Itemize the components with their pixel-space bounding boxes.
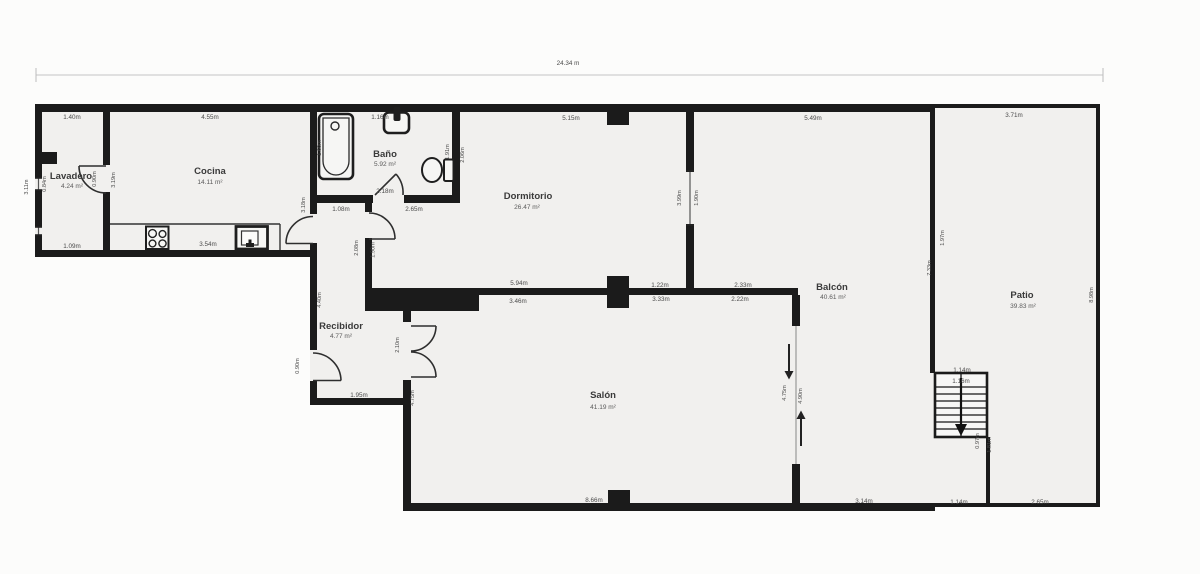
svg-text:1.91m: 1.91m xyxy=(445,144,451,160)
svg-text:39.83 m²: 39.83 m² xyxy=(1010,303,1036,310)
svg-text:14.11 m²: 14.11 m² xyxy=(197,179,223,186)
svg-text:40.61 m²: 40.61 m² xyxy=(820,294,846,301)
svg-text:2.18m: 2.18m xyxy=(376,188,394,195)
svg-text:1.08m: 1.08m xyxy=(332,206,350,213)
svg-text:0.97m: 0.97m xyxy=(975,433,981,449)
svg-text:Lavadero: Lavadero xyxy=(50,171,92,182)
svg-text:4.75m: 4.75m xyxy=(410,390,416,406)
svg-text:1.16m: 1.16m xyxy=(952,378,970,385)
svg-text:3.71m: 3.71m xyxy=(1005,112,1023,119)
svg-text:5.15m: 5.15m xyxy=(562,115,580,122)
svg-text:4.55m: 4.55m xyxy=(201,114,219,121)
svg-text:5.49m: 5.49m xyxy=(804,115,822,122)
svg-text:4.75m: 4.75m xyxy=(782,385,788,401)
svg-text:Dormitorio: Dormitorio xyxy=(504,191,553,202)
svg-text:3.11m: 3.11m xyxy=(24,179,30,194)
svg-text:4.77 m²: 4.77 m² xyxy=(330,333,353,340)
svg-text:1.60m: 1.60m xyxy=(317,140,323,156)
svg-text:2.06m: 2.06m xyxy=(460,147,466,163)
svg-text:4.40m: 4.40m xyxy=(317,292,323,308)
svg-text:8.66m: 8.66m xyxy=(585,497,603,504)
svg-text:2.65m: 2.65m xyxy=(405,206,423,213)
svg-text:Balcón: Balcón xyxy=(816,282,848,293)
svg-text:1.95m: 1.95m xyxy=(350,392,368,399)
svg-text:3.33m: 3.33m xyxy=(652,296,670,303)
svg-text:Baño: Baño xyxy=(373,149,397,160)
svg-text:2.10m: 2.10m xyxy=(395,337,401,353)
svg-text:2.22m: 2.22m xyxy=(731,296,749,303)
svg-text:3.99m: 3.99m xyxy=(677,190,683,206)
svg-text:1.90m: 1.90m xyxy=(371,242,377,258)
svg-text:1.16m: 1.16m xyxy=(371,114,389,121)
svg-text:24.34 m: 24.34 m xyxy=(557,60,580,67)
svg-text:Cocina: Cocina xyxy=(194,166,226,177)
svg-text:2.65m: 2.65m xyxy=(1031,499,1049,506)
svg-text:1.14m: 1.14m xyxy=(950,499,968,506)
svg-text:1.09m: 1.09m xyxy=(63,243,81,250)
svg-text:4.90m: 4.90m xyxy=(798,388,804,404)
svg-text:3.14m: 3.14m xyxy=(855,498,873,505)
svg-text:3.54m: 3.54m xyxy=(199,241,217,248)
svg-text:2.08m: 2.08m xyxy=(354,240,360,256)
svg-text:1.90m: 1.90m xyxy=(694,190,700,206)
svg-text:5.92 m²: 5.92 m² xyxy=(374,161,397,168)
svg-text:3.18m: 3.18m xyxy=(301,197,307,213)
svg-text:Recibidor: Recibidor xyxy=(319,321,363,332)
svg-text:0.84m: 0.84m xyxy=(42,176,48,192)
svg-text:1.22m: 1.22m xyxy=(651,282,669,289)
svg-text:5.94m: 5.94m xyxy=(510,280,528,287)
svg-text:3.19m: 3.19m xyxy=(111,172,117,188)
svg-text:8.98m: 8.98m xyxy=(1089,287,1095,303)
svg-text:1.40m: 1.40m xyxy=(63,114,81,121)
svg-text:Salón: Salón xyxy=(590,390,616,401)
svg-text:1.81m: 1.81m xyxy=(987,437,993,453)
svg-text:0.90m: 0.90m xyxy=(295,358,301,374)
svg-text:41.19 m²: 41.19 m² xyxy=(590,404,616,411)
svg-text:0.90m: 0.90m xyxy=(92,171,98,187)
svg-text:26.47 m²: 26.47 m² xyxy=(514,204,540,211)
svg-text:7.33m: 7.33m xyxy=(927,260,933,276)
svg-text:1.97m: 1.97m xyxy=(940,230,946,246)
svg-text:3.46m: 3.46m xyxy=(509,298,527,305)
svg-text:2.33m: 2.33m xyxy=(734,282,752,289)
svg-text:1.14m: 1.14m xyxy=(953,367,971,374)
svg-text:4.24 m²: 4.24 m² xyxy=(61,183,84,190)
svg-text:Patio: Patio xyxy=(1010,290,1033,301)
